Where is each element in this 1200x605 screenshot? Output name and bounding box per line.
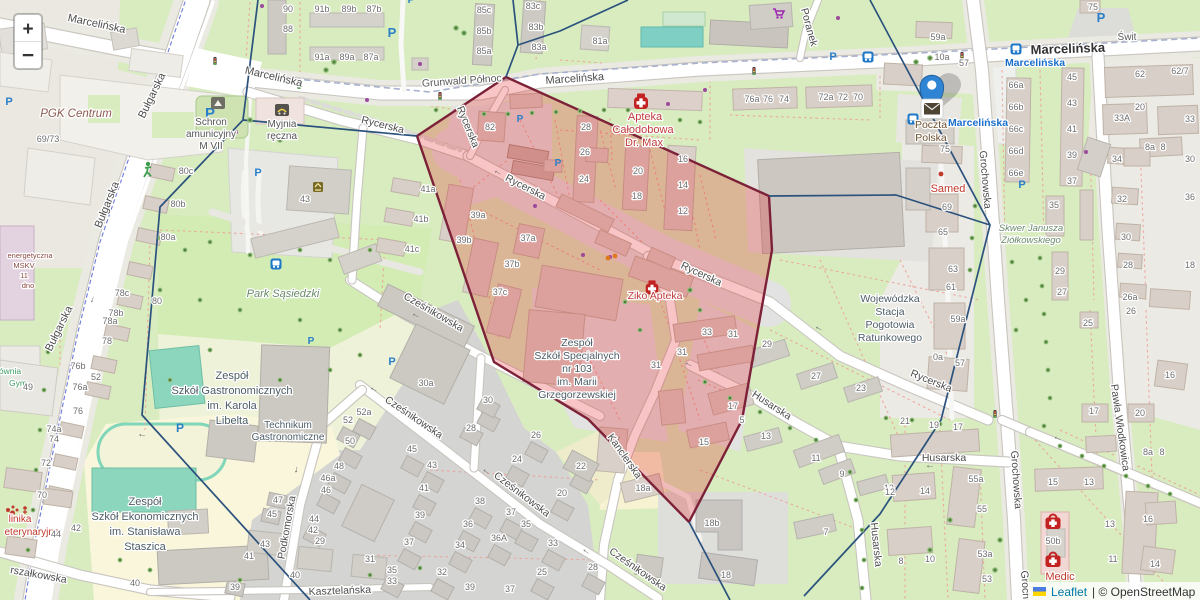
svg-text:34: 34: [455, 540, 465, 550]
svg-text:17: 17: [953, 422, 963, 432]
svg-text:39a: 39a: [470, 210, 485, 220]
svg-text:Zespół: Zespół: [128, 496, 162, 508]
svg-text:34: 34: [1112, 154, 1122, 164]
svg-text:8: 8: [1160, 142, 1165, 152]
svg-text:Marcelińska: Marcelińska: [1005, 57, 1065, 69]
svg-text:Ratunkowego: Ratunkowego: [858, 332, 922, 344]
svg-text:←: ←: [137, 428, 148, 440]
svg-text:66b: 66b: [1008, 102, 1023, 112]
svg-text:MSKV: MSKV: [13, 261, 34, 270]
svg-text:Medic: Medic: [1045, 571, 1075, 583]
svg-text:im. Karola: im. Karola: [207, 400, 257, 412]
svg-text:74: 74: [779, 94, 789, 104]
svg-text:16: 16: [1165, 370, 1175, 380]
svg-text:28: 28: [581, 122, 591, 132]
svg-text:78c: 78c: [115, 288, 130, 298]
svg-text:28: 28: [588, 562, 598, 572]
svg-text:85c: 85c: [477, 5, 492, 15]
svg-text:Husarska: Husarska: [922, 452, 967, 464]
svg-text:Świt: Świt: [1118, 30, 1137, 43]
svg-text:Szkół Specjalnych: Szkół Specjalnych: [534, 350, 619, 362]
svg-text:20: 20: [1135, 102, 1145, 112]
svg-text:15: 15: [1048, 477, 1058, 487]
svg-text:24: 24: [512, 454, 522, 464]
svg-text:78a: 78a: [102, 316, 117, 326]
svg-text:33: 33: [1185, 114, 1195, 124]
svg-text:55: 55: [977, 504, 987, 514]
svg-text:15: 15: [699, 437, 709, 447]
svg-text:63: 63: [948, 264, 958, 274]
svg-text:32: 32: [1117, 194, 1127, 204]
svg-text:91a: 91a: [314, 52, 329, 62]
svg-text:ównia: ównia: [0, 366, 21, 376]
svg-text:45: 45: [407, 444, 417, 454]
svg-text:52: 52: [91, 372, 101, 382]
svg-text:nr 103: nr 103: [562, 363, 592, 375]
svg-text:P: P: [388, 25, 397, 40]
svg-text:43: 43: [1067, 98, 1077, 108]
svg-text:8a: 8a: [1145, 142, 1155, 152]
svg-text:74a: 74a: [46, 424, 61, 434]
svg-text:37c: 37c: [493, 287, 508, 297]
svg-text:41b: 41b: [413, 214, 428, 224]
svg-text:dno: dno: [22, 281, 35, 290]
svg-text:im. Stanisława: im. Stanisława: [110, 526, 182, 538]
svg-text:12: 12: [885, 487, 895, 497]
svg-text:43: 43: [300, 194, 310, 204]
svg-text:36: 36: [463, 519, 473, 529]
svg-text:90: 90: [283, 4, 293, 14]
svg-text:80: 80: [152, 296, 162, 306]
svg-text:18: 18: [1185, 260, 1195, 270]
svg-text:energetyczna: energetyczna: [7, 251, 53, 260]
svg-text:26a: 26a: [1122, 292, 1137, 302]
svg-text:49: 49: [23, 382, 33, 392]
svg-text:14: 14: [920, 486, 930, 496]
svg-text:Polska: Polska: [915, 132, 947, 144]
svg-text:Apteka: Apteka: [628, 111, 663, 123]
svg-text:83c: 83c: [526, 1, 541, 11]
svg-text:44: 44: [51, 529, 61, 539]
svg-text:11: 11: [811, 453, 820, 463]
svg-text:66e: 66e: [1008, 168, 1023, 178]
svg-text:89a: 89a: [339, 52, 354, 62]
svg-text:28: 28: [466, 423, 476, 433]
svg-text:16: 16: [1143, 514, 1153, 524]
svg-text:35: 35: [387, 565, 397, 575]
svg-text:42: 42: [308, 525, 318, 535]
svg-text:13: 13: [1084, 477, 1094, 487]
svg-text:89b: 89b: [341, 4, 356, 14]
svg-text:30: 30: [1121, 232, 1131, 242]
svg-text:46: 46: [321, 485, 331, 495]
svg-text:29: 29: [315, 536, 325, 546]
svg-text:40: 40: [290, 570, 300, 580]
svg-text:26: 26: [531, 430, 541, 440]
svg-text:P: P: [1018, 179, 1025, 191]
svg-text:72a: 72a: [818, 92, 833, 102]
svg-text:Samed: Samed: [931, 183, 966, 195]
svg-text:39: 39: [415, 510, 425, 520]
svg-text:linika: linika: [9, 514, 32, 525]
svg-text:70: 70: [37, 490, 47, 500]
svg-text:37: 37: [506, 507, 516, 517]
svg-text:11: 11: [1108, 554, 1117, 564]
svg-text:76: 76: [73, 406, 83, 416]
svg-text:Ziółkowskiego: Ziółkowskiego: [1000, 235, 1061, 246]
svg-text:Staszica: Staszica: [124, 541, 166, 553]
svg-text:61: 61: [946, 282, 956, 292]
svg-text:70: 70: [853, 92, 863, 102]
svg-text:Wojewódzka: Wojewódzka: [860, 293, 919, 305]
svg-text:14: 14: [678, 180, 688, 190]
svg-text:P: P: [555, 158, 562, 169]
svg-text:87a: 87a: [363, 52, 378, 62]
svg-text:39: 39: [230, 582, 240, 592]
svg-text:M VII: M VII: [199, 141, 222, 152]
svg-text:72: 72: [838, 92, 848, 102]
svg-text:11: 11: [20, 271, 28, 280]
svg-text:Stacja: Stacja: [875, 306, 904, 318]
svg-text:53: 53: [982, 574, 992, 584]
svg-text:12: 12: [678, 206, 688, 216]
svg-text:80c: 80c: [179, 166, 194, 176]
svg-text:81a: 81a: [592, 36, 607, 46]
svg-text:69/73: 69/73: [37, 134, 60, 144]
svg-text:P: P: [829, 51, 836, 63]
svg-text:26: 26: [580, 147, 590, 157]
svg-text:23: 23: [856, 383, 866, 393]
svg-text:82: 82: [485, 122, 495, 132]
svg-text:21: 21: [900, 416, 910, 426]
svg-text:Leaflet: Leaflet: [1051, 585, 1088, 599]
svg-text:Kasztelańska: Kasztelańska: [308, 584, 371, 598]
svg-text:52a: 52a: [356, 407, 371, 417]
svg-text:20: 20: [557, 488, 567, 498]
svg-text:17: 17: [1089, 406, 1099, 416]
svg-text:Schron: Schron: [195, 117, 227, 128]
svg-text:31: 31: [728, 329, 738, 339]
svg-text:Marcelińska: Marcelińska: [1030, 40, 1106, 58]
svg-text:8: 8: [1159, 447, 1164, 457]
svg-text:Szkół Gastronomicznych: Szkół Gastronomicznych: [171, 385, 292, 397]
svg-text:+: +: [22, 19, 33, 40]
svg-text:18: 18: [632, 191, 642, 201]
svg-text:37: 37: [1067, 176, 1077, 186]
svg-text:74: 74: [49, 434, 59, 444]
svg-text:66d: 66d: [1008, 146, 1023, 156]
svg-text:44: 44: [309, 514, 319, 524]
svg-text:18a: 18a: [635, 483, 650, 493]
svg-text:16: 16: [678, 154, 688, 164]
svg-text:14: 14: [1150, 559, 1160, 569]
svg-text:47: 47: [273, 495, 283, 505]
svg-text:50b: 50b: [1045, 536, 1060, 546]
svg-text:P: P: [408, 0, 415, 6]
svg-text:45: 45: [1067, 72, 1077, 82]
svg-text:P: P: [254, 167, 261, 179]
svg-text:75: 75: [1088, 2, 1098, 12]
svg-text:Grzegorzewskiej: Grzegorzewskiej: [538, 389, 616, 401]
svg-text:20: 20: [633, 166, 643, 176]
svg-text:5: 5: [739, 415, 744, 425]
svg-text:19: 19: [929, 420, 939, 430]
svg-text:41a: 41a: [420, 184, 435, 194]
svg-text:43: 43: [260, 539, 270, 549]
svg-text:25: 25: [537, 567, 547, 577]
svg-text:30: 30: [483, 395, 493, 405]
svg-text:27: 27: [1057, 287, 1067, 297]
svg-text:76: 76: [763, 94, 773, 104]
svg-text:66c: 66c: [1009, 124, 1024, 134]
svg-text:37a: 37a: [520, 233, 535, 243]
svg-text:33A: 33A: [1114, 113, 1130, 123]
svg-text:83b: 83b: [528, 22, 543, 32]
svg-text:im. Marii: im. Marii: [557, 376, 597, 388]
svg-text:ręczna: ręczna: [267, 131, 297, 142]
svg-text:39: 39: [465, 582, 475, 592]
svg-text:9: 9: [839, 469, 844, 479]
svg-text:24: 24: [579, 174, 589, 184]
svg-text:Poczta: Poczta: [915, 119, 947, 131]
svg-text:80b: 80b: [170, 199, 185, 209]
svg-text:Zespół: Zespół: [215, 370, 249, 382]
svg-text:52: 52: [343, 415, 353, 425]
svg-text:75: 75: [940, 144, 950, 154]
svg-text:Marcelińska: Marcelińska: [948, 117, 1008, 129]
svg-text:43: 43: [427, 460, 437, 470]
svg-text:87b: 87b: [366, 4, 381, 14]
svg-text:88: 88: [283, 24, 293, 34]
svg-text:40: 40: [130, 578, 140, 588]
svg-text:66a: 66a: [1008, 80, 1023, 90]
svg-text:Szkół Ekonomicznych: Szkół Ekonomicznych: [92, 511, 199, 523]
svg-text:36: 36: [1185, 192, 1195, 202]
svg-text:31: 31: [651, 360, 661, 370]
svg-text:8: 8: [898, 556, 903, 566]
svg-text:Ziko Apteka: Ziko Apteka: [628, 290, 683, 302]
svg-text:62: 62: [1135, 69, 1145, 79]
svg-text:35: 35: [521, 519, 531, 529]
svg-text:57: 57: [955, 358, 965, 368]
svg-text:48: 48: [334, 461, 344, 471]
svg-text:30: 30: [1185, 154, 1195, 164]
svg-text:Zespół: Zespół: [561, 337, 593, 349]
svg-text:69: 69: [942, 202, 952, 212]
svg-text:PGK Centrum: PGK Centrum: [40, 108, 112, 120]
svg-text:37: 37: [404, 537, 414, 547]
svg-text:Gastronomiczne: Gastronomiczne: [252, 432, 325, 443]
svg-text:Libelta: Libelta: [216, 415, 249, 427]
svg-text:76a: 76a: [72, 382, 87, 392]
svg-text:59a: 59a: [950, 314, 965, 324]
svg-text:Pogotowia: Pogotowia: [865, 319, 914, 331]
svg-text:31: 31: [365, 554, 375, 564]
svg-text:10: 10: [925, 554, 935, 564]
svg-text:20: 20: [1135, 408, 1145, 418]
svg-text:8a: 8a: [1143, 447, 1153, 457]
svg-text:29: 29: [762, 339, 772, 349]
svg-text:36A: 36A: [491, 533, 507, 543]
svg-text:22: 22: [576, 461, 586, 471]
svg-text:41c: 41c: [405, 244, 420, 254]
svg-text:33: 33: [548, 538, 558, 548]
svg-text:amunicyjny: amunicyjny: [186, 129, 236, 140]
svg-text:41: 41: [1067, 124, 1077, 134]
svg-text:35: 35: [1049, 200, 1059, 210]
svg-text:42: 42: [71, 523, 81, 533]
svg-text:10a: 10a: [934, 52, 949, 62]
svg-text:85b: 85b: [476, 26, 491, 36]
svg-text:41: 41: [244, 551, 254, 561]
svg-text:P: P: [176, 421, 184, 435]
svg-text:91b: 91b: [314, 4, 329, 14]
svg-text:55a: 55a: [968, 474, 983, 484]
svg-text:39b: 39b: [456, 235, 471, 245]
svg-text:32: 32: [437, 567, 447, 577]
svg-text:65: 65: [938, 227, 948, 237]
svg-text:37b: 37b: [504, 259, 519, 269]
svg-text:Park Sąsiedzki: Park Sąsiedzki: [247, 288, 320, 300]
svg-text:7: 7: [823, 527, 828, 537]
svg-text:59a: 59a: [930, 32, 945, 42]
svg-text:Myjnia: Myjnia: [268, 119, 297, 130]
svg-text:P: P: [1097, 10, 1106, 25]
svg-text:31: 31: [677, 347, 687, 357]
svg-text:17: 17: [728, 401, 738, 411]
svg-text:29: 29: [1055, 266, 1065, 276]
svg-text:P: P: [5, 96, 12, 108]
svg-text:P: P: [388, 356, 395, 368]
svg-text:18b: 18b: [704, 518, 719, 528]
svg-text:83a: 83a: [531, 42, 546, 52]
svg-text:P: P: [517, 114, 524, 125]
svg-text:P: P: [308, 336, 315, 347]
svg-text:72: 72: [41, 458, 51, 468]
svg-text:−: −: [22, 44, 34, 67]
svg-text:33: 33: [387, 576, 397, 586]
svg-text:18: 18: [721, 570, 731, 580]
svg-text:13: 13: [1105, 519, 1115, 529]
svg-text:Dr. Max: Dr. Max: [625, 137, 663, 149]
svg-text:26: 26: [1126, 306, 1136, 316]
svg-text:50: 50: [345, 436, 355, 446]
svg-text:41: 41: [419, 483, 429, 493]
svg-text:80a: 80a: [160, 232, 175, 242]
svg-text:38: 38: [475, 496, 485, 506]
svg-text:Skwer Janusza: Skwer Janusza: [999, 223, 1063, 234]
svg-text:57: 57: [959, 58, 969, 68]
svg-text:76a: 76a: [744, 94, 759, 104]
svg-text:28: 28: [1123, 260, 1133, 270]
svg-text:30a: 30a: [418, 378, 433, 388]
svg-text:78: 78: [102, 336, 112, 346]
svg-text:45: 45: [267, 509, 277, 519]
svg-text:| © OpenStreetMap: | © OpenStreetMap: [1092, 585, 1196, 599]
svg-text:13: 13: [761, 431, 771, 441]
svg-text:Całodobowa: Całodobowa: [612, 124, 674, 136]
svg-text:27: 27: [811, 371, 821, 381]
svg-text:76b: 76b: [70, 361, 85, 371]
svg-text:25: 25: [1083, 318, 1093, 328]
svg-text:39: 39: [1067, 150, 1077, 160]
svg-text:33: 33: [702, 327, 712, 337]
svg-text:0a: 0a: [933, 352, 943, 362]
svg-text:46a: 46a: [320, 473, 335, 483]
svg-text:Technikum: Technikum: [264, 420, 312, 431]
svg-text:37: 37: [505, 584, 515, 594]
svg-text:85a: 85a: [476, 46, 491, 56]
svg-text:53a: 53a: [977, 549, 992, 559]
svg-text:62/7: 62/7: [1171, 66, 1189, 76]
